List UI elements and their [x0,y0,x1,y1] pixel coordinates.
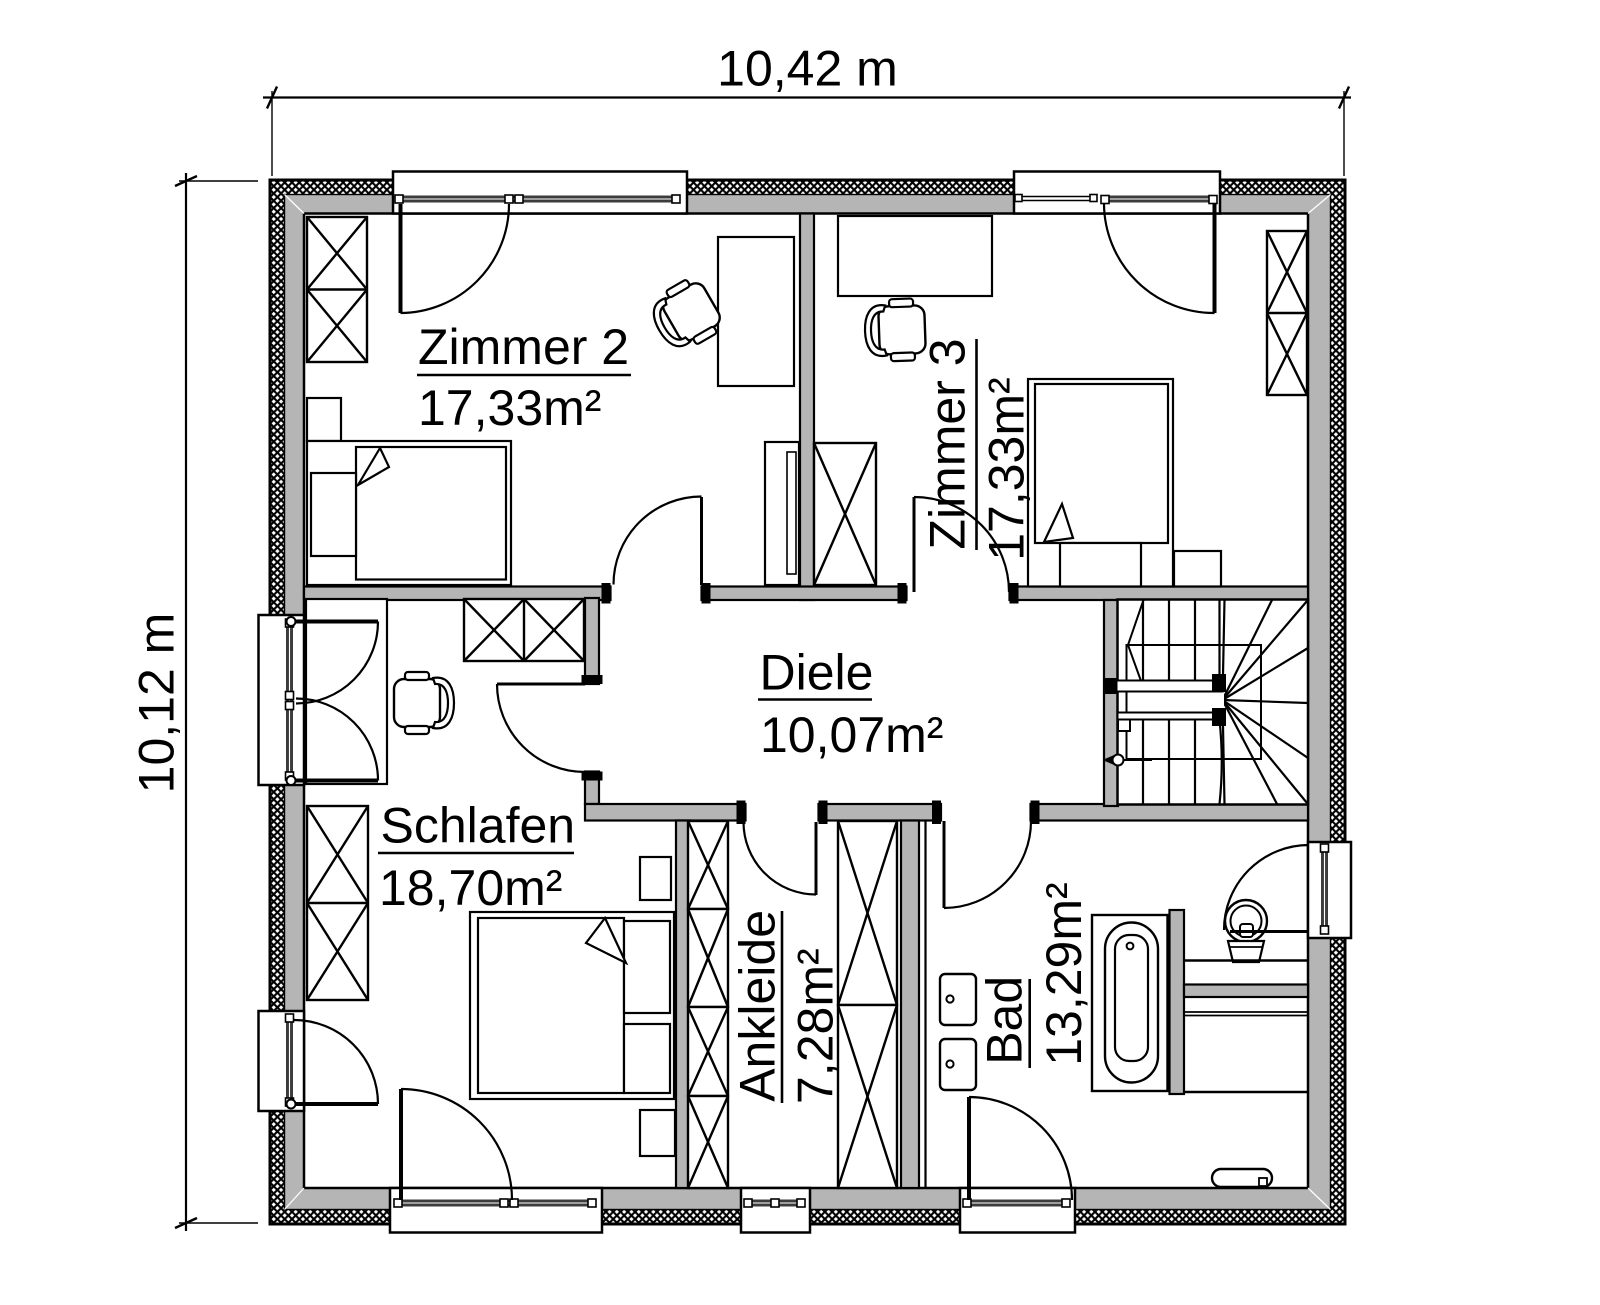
svg-text:Zimmer 2: Zimmer 2 [418,319,629,375]
svg-text:18,70m²: 18,70m² [379,860,562,916]
svg-text:17,33m²: 17,33m² [979,377,1035,560]
svg-text:10,12 m: 10,12 m [129,613,185,794]
svg-text:Diele: Diele [760,645,874,701]
svg-text:Zimmer 3: Zimmer 3 [920,338,976,549]
svg-text:Bad: Bad [977,976,1033,1065]
svg-text:7,28m²: 7,28m² [788,948,844,1104]
svg-text:10,42 m: 10,42 m [717,41,898,97]
svg-text:17,33m²: 17,33m² [418,380,601,436]
svg-text:10,07m²: 10,07m² [760,707,943,763]
svg-text:13,29m²: 13,29m² [1036,882,1092,1065]
svg-text:Schlafen: Schlafen [381,798,576,854]
svg-text:Ankleide: Ankleide [730,910,786,1102]
